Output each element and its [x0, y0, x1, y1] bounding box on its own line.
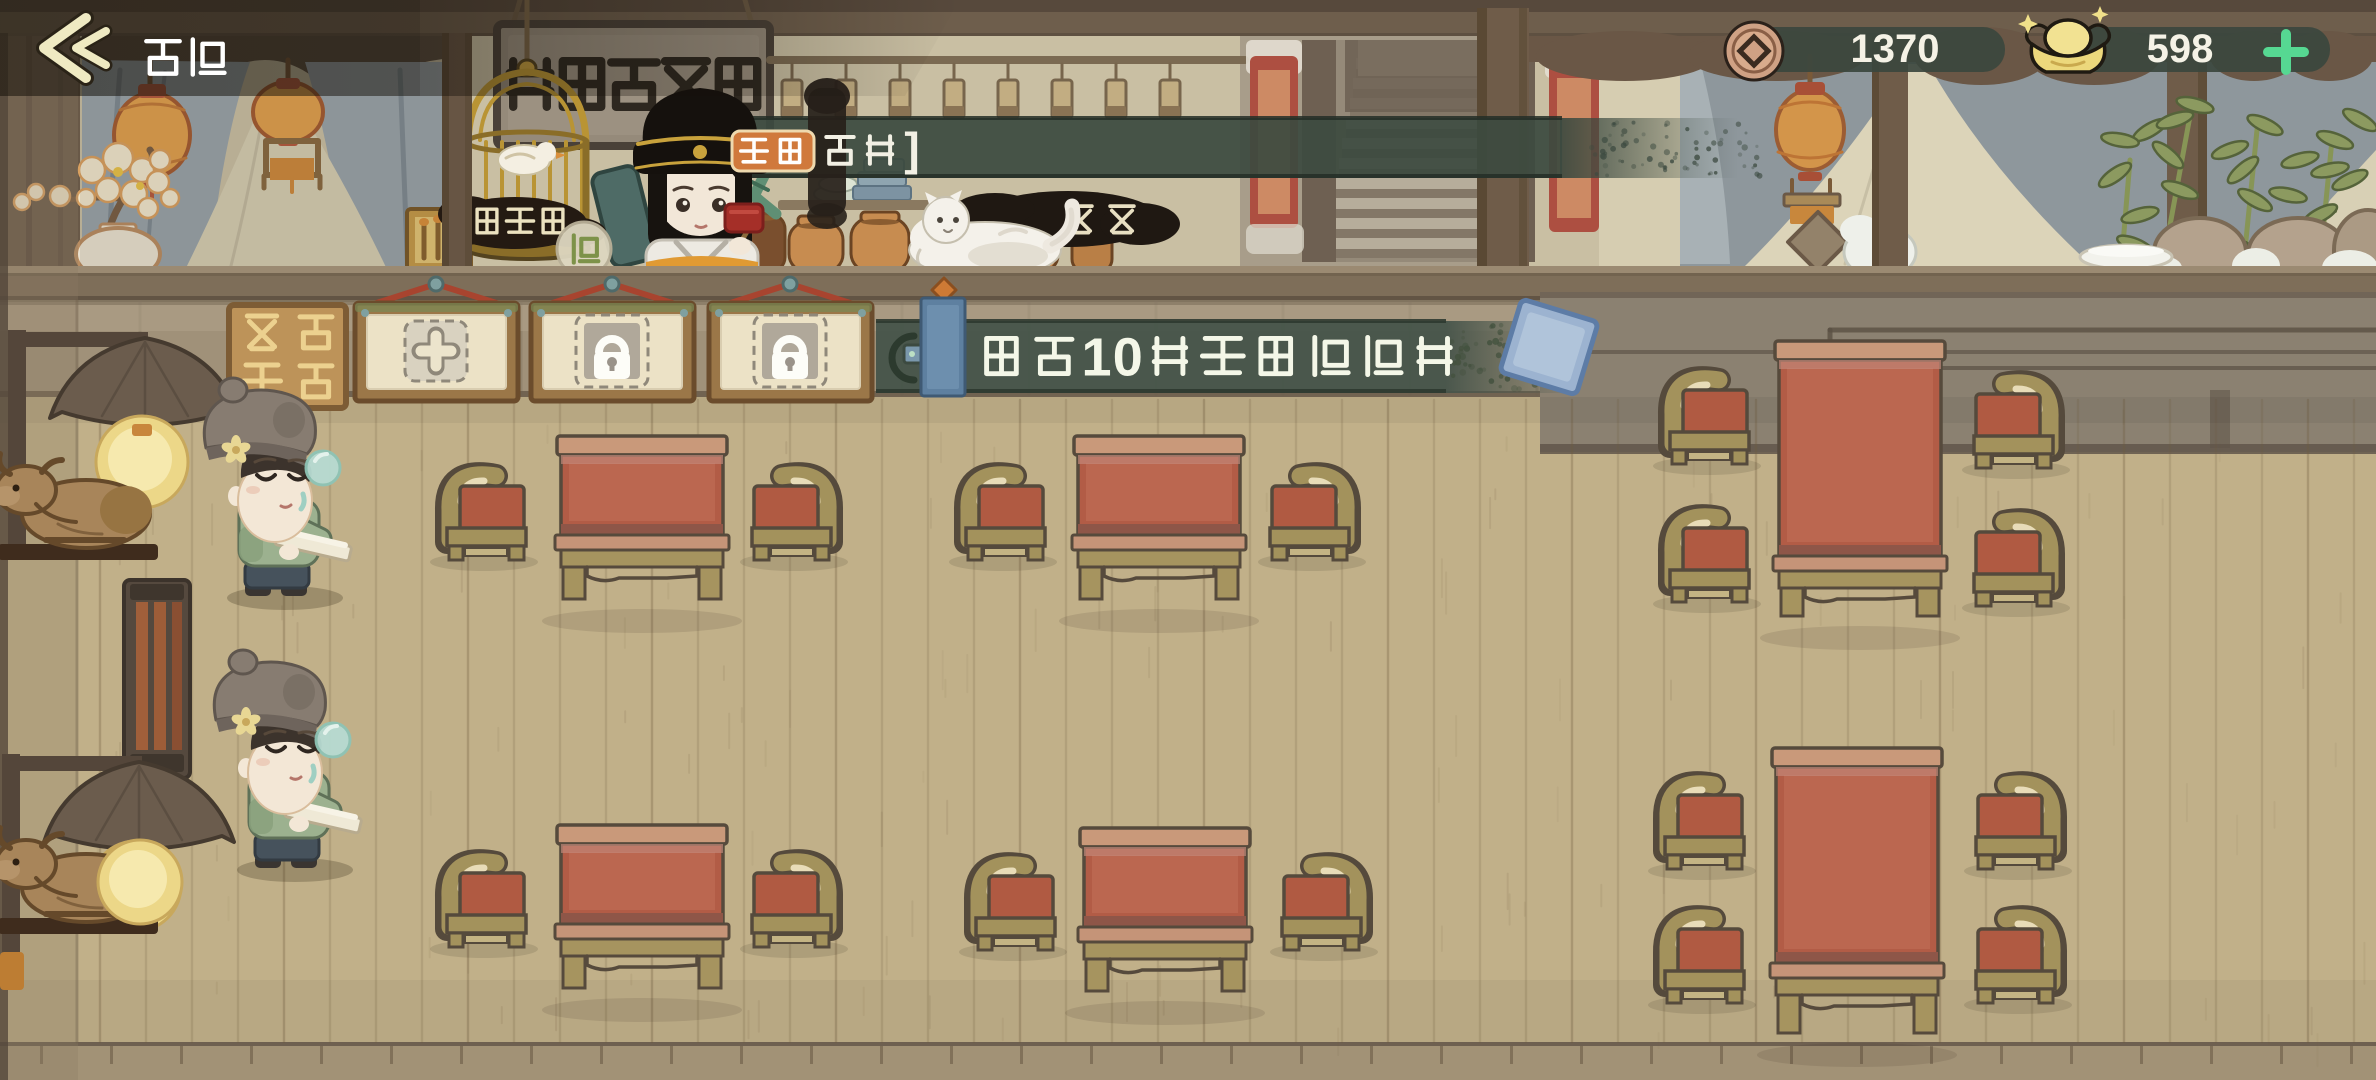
svg-text:1370: 1370: [1851, 27, 1940, 71]
svg-text:1: 1: [1081, 327, 1111, 387]
svg-text:598: 598: [2147, 27, 2214, 71]
svg-text:0: 0: [1113, 327, 1143, 387]
svg-text:]: ]: [904, 123, 919, 175]
